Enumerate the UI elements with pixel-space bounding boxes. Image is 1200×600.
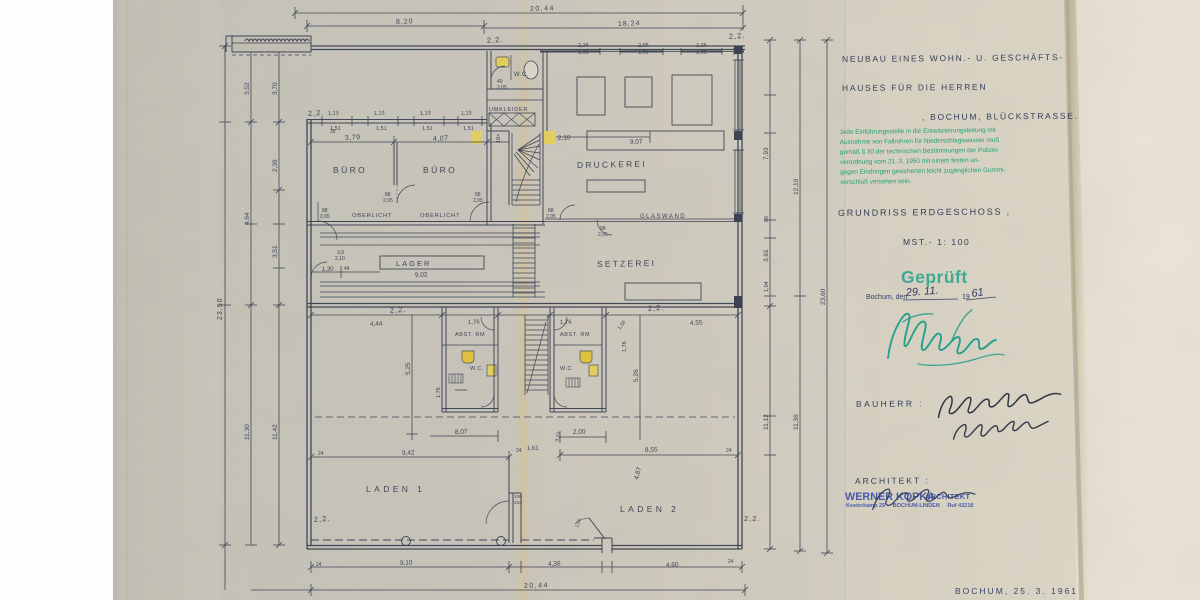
svg-text:1,61: 1,61 [696,50,707,56]
svg-text:29. 11.: 29. 11. [904,285,939,299]
svg-text:verschluß versehen sein.: verschluß versehen sein. [840,178,911,186]
svg-text:2,05: 2,05 [598,232,608,238]
svg-text:1,13: 1,13 [420,110,431,117]
svg-text:MST.- 1: 100: MST.- 1: 100 [903,237,970,247]
svg-text:LADEN 1: LADEN 1 [366,484,425,494]
svg-text:4,64: 4,64 [244,212,251,225]
svg-text:2,2.: 2,2. [744,514,761,523]
svg-text:5,25: 5,25 [405,362,412,375]
svg-text:2,2.: 2,2. [487,35,504,45]
svg-text:ABST. RM: ABST. RM [560,332,590,338]
svg-text:2,10: 2,10 [558,134,571,142]
svg-text:BÜRO: BÜRO [333,165,367,175]
svg-text:2,05: 2,05 [473,198,483,204]
svg-text:3,79: 3,79 [345,134,361,142]
svg-text:1,61: 1,61 [578,50,589,56]
svg-text:3,51: 3,51 [272,245,279,258]
svg-text:61: 61 [971,286,985,300]
svg-text:2,26: 2,26 [578,43,589,49]
svg-text:UMKLEIDER: UMKLEIDER [489,107,528,113]
svg-text:2,26: 2,26 [696,43,707,49]
svg-text:1,76: 1,76 [622,341,628,352]
svg-text:NEUBAU EINES WOHN.- U. GESCHÄF: NEUBAU EINES WOHN.- U. GESCHÄFTS- [842,52,1064,64]
svg-text:1,51: 1,51 [376,126,387,132]
svg-text:1,76: 1,76 [436,387,442,398]
svg-text:24: 24 [316,562,322,568]
svg-text:2,10: 2,10 [335,256,345,262]
svg-text:1,61: 1,61 [527,446,540,452]
svg-text:44: 44 [344,266,350,272]
svg-text:23,50: 23,50 [217,297,224,320]
svg-text:2,39: 2,39 [272,159,279,172]
svg-text:Bochum, den: Bochum, den [866,294,907,301]
svg-text:1,51: 1,51 [422,126,433,132]
svg-text:8,07: 8,07 [455,428,468,436]
svg-text:3,52: 3,52 [244,82,251,95]
svg-text:11,30: 11,30 [244,424,251,440]
svg-text:24: 24 [318,451,324,457]
svg-text:24: 24 [516,448,522,454]
svg-text:1,51: 1,51 [463,126,474,132]
svg-text:4,07: 4,07 [433,135,449,143]
svg-text:2,06: 2,06 [638,43,649,49]
svg-text:Geprüft: Geprüft [901,267,968,287]
svg-text:4,60: 4,60 [666,562,679,569]
svg-text:4,55: 4,55 [690,320,703,327]
svg-text:W.C.: W.C. [514,72,529,78]
svg-text:11,42: 11,42 [272,424,279,440]
svg-text:2,05: 2,05 [320,214,330,220]
svg-text:9,02: 9,02 [415,271,428,279]
svg-text:1,76: 1,76 [560,320,573,326]
svg-text:8,55: 8,55 [645,447,658,454]
svg-text:2,00: 2,00 [573,429,586,436]
svg-text:BOCHUM, 25. 3. 1961: BOCHUM, 25. 3. 1961 [955,586,1078,596]
svg-text:GLASWAND: GLASWAND [640,214,686,220]
svg-text:2,05: 2,05 [497,85,507,91]
svg-text:HAUSES FÜR DIE HERREN: HAUSES FÜR DIE HERREN [842,82,987,93]
svg-text:1,76: 1,76 [468,320,481,326]
svg-text:12,10: 12,10 [793,178,800,195]
svg-text:11,36: 11,36 [793,414,800,430]
svg-text:1,13: 1,13 [461,110,472,117]
svg-text:2,05: 2,05 [546,214,556,220]
svg-text:4,44: 4,44 [370,321,383,328]
svg-text:SETZEREI: SETZEREI [597,258,656,269]
svg-text:8,20: 8,20 [396,18,414,26]
svg-text:18×: 18× [496,134,502,143]
svg-text:4,36: 4,36 [548,561,561,568]
svg-text:100: 100 [514,494,522,500]
svg-text:W.C.: W.C. [470,366,484,372]
svg-text:ARCHITEKT :: ARCHITEKT : [855,475,930,486]
svg-text:2,2.: 2,2. [729,31,746,41]
svg-text:1,04: 1,04 [764,281,770,292]
svg-text:2,2.: 2,2. [648,303,665,313]
svg-text:86: 86 [764,216,770,222]
svg-text:1,61: 1,61 [638,50,649,56]
svg-text:BÜRO: BÜRO [423,165,457,175]
svg-text:9,10: 9,10 [400,560,413,567]
svg-text:, BOCHUM, BLÜCKSTRASSE.: , BOCHUM, BLÜCKSTRASSE. [922,111,1079,122]
svg-text:ABST. RM: ABST. RM [455,332,485,338]
svg-text:5,26: 5,26 [633,369,640,382]
svg-text:9,07: 9,07 [630,138,643,146]
svg-text:7,93: 7,93 [763,147,770,160]
svg-text:1,13: 1,13 [328,110,339,117]
svg-text:LADEN 2: LADEN 2 [620,504,679,514]
svg-text:BAUHERR :: BAUHERR : [856,398,924,409]
svg-text:2,05: 2,05 [383,198,393,204]
svg-text:24: 24 [726,448,732,454]
svg-text:20,44: 20,44 [530,5,555,13]
svg-text:2,2.: 2,2. [314,514,331,524]
svg-text:11,12: 11,12 [763,414,770,430]
svg-text:OBERLICHT: OBERLICHT [352,213,392,219]
svg-text:2,2.: 2,2. [390,305,407,315]
svg-text:1,13: 1,13 [374,110,385,117]
svg-text:3,61: 3,61 [763,249,770,262]
svg-text:OBERLICHT: OBERLICHT [420,213,460,219]
svg-text:24: 24 [728,559,734,565]
svg-text:210: 210 [514,500,522,506]
svg-text:LAGER: LAGER [396,259,431,268]
svg-text:23,60: 23,60 [820,288,827,305]
svg-text:20,44: 20,44 [524,582,549,590]
svg-text:30: 30 [330,129,336,135]
svg-text:GRUNDRISS ERDGESCHOSS ,: GRUNDRISS ERDGESCHOSS , [838,206,1011,218]
svg-text:W.C.: W.C. [560,366,574,372]
svg-text:9,42: 9,42 [402,450,415,457]
svg-text:3,70: 3,70 [272,82,279,95]
svg-text:1,30: 1,30 [322,266,335,273]
svg-text:DRUCKEREI: DRUCKEREI [577,159,647,170]
svg-text:Kesterkamp 25 BOCHUM-LINDE: Kesterkamp 25 BOCHUM-LINDEN Ruf 43218 [846,503,973,509]
svg-text:18,24: 18,24 [618,20,641,28]
